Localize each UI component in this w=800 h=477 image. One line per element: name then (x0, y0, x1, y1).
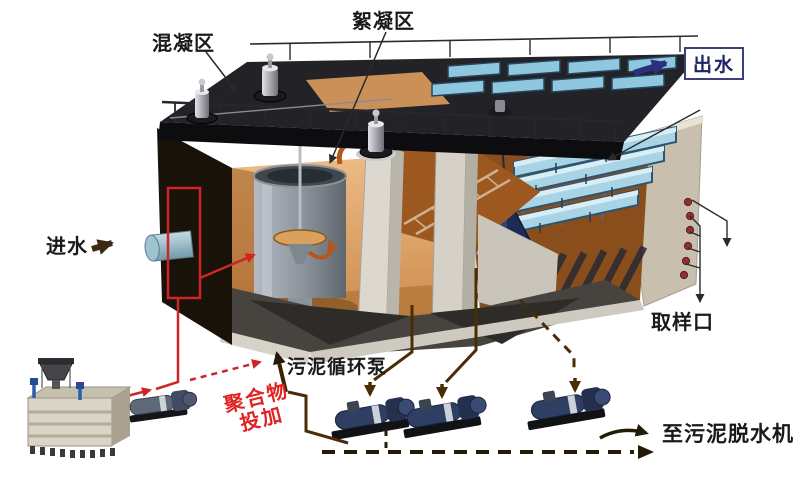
effluent-label-box: 出水 (684, 47, 744, 80)
label-coagulation-zone: 混凝区 (152, 27, 215, 56)
polymer-hopper (38, 358, 74, 389)
label-to-sludge-dewatering: 至污泥脱水机 (662, 418, 794, 448)
label-flocculation-zone: 絮凝区 (352, 5, 415, 34)
label-sampling-port: 取样口 (651, 306, 714, 335)
top-deck (158, 36, 700, 161)
label-influent: 进水 (46, 230, 88, 259)
influent-arrow-icon (92, 243, 112, 249)
process-diagram-canvas: 混凝区 絮凝区 出水 进水 污泥循环泵 取样口 聚合物 投加 至污泥脱水机 (0, 0, 800, 477)
plant-3d-illustration (0, 0, 800, 477)
polymer-preparation-unit (28, 358, 130, 458)
